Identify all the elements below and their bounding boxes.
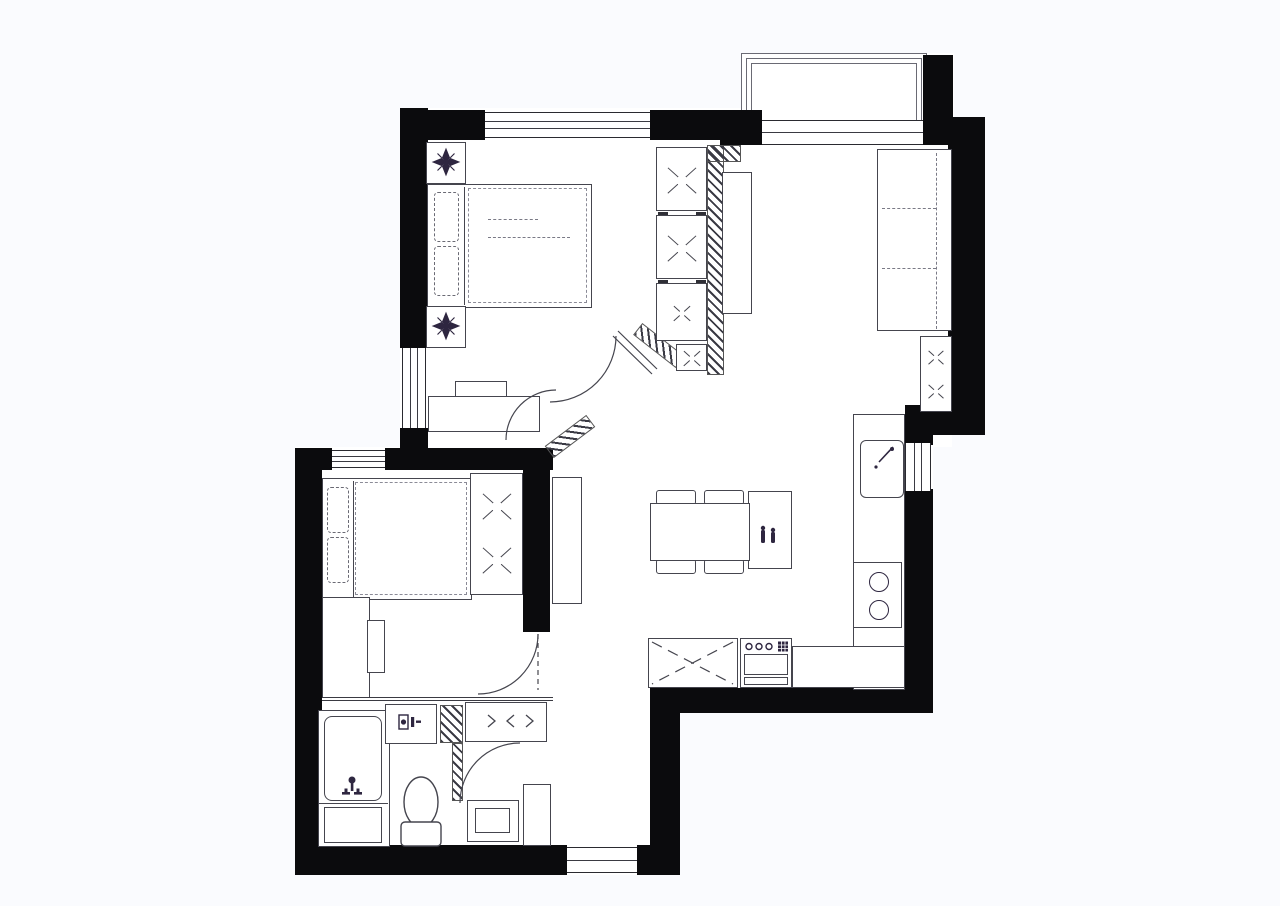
window-bedroom2-top xyxy=(332,450,385,468)
wall-b1-left-lower xyxy=(400,428,428,453)
pillow xyxy=(434,246,459,296)
refrigerator-cabinet xyxy=(648,638,738,688)
plant-icon xyxy=(429,309,463,343)
shelf-tick xyxy=(696,212,706,215)
entry-door-threshold xyxy=(567,847,637,873)
double-bed-bedroom1 xyxy=(427,184,592,308)
bathtub-foot xyxy=(324,807,382,843)
bathtub-divider xyxy=(319,803,388,804)
plant-icon xyxy=(429,145,463,179)
burner-icon xyxy=(869,572,889,592)
wall-right-upper xyxy=(948,117,985,408)
side-cabinet xyxy=(920,336,952,412)
shoe-cabinet xyxy=(465,702,547,742)
dining-table xyxy=(650,503,750,561)
kitchen-sink xyxy=(860,440,904,498)
toilet-icon xyxy=(396,774,448,848)
washing-machine xyxy=(385,704,437,744)
wall-living-top xyxy=(720,110,762,145)
x-mark-icon xyxy=(926,345,946,369)
oven-drawer xyxy=(744,677,788,685)
kitchen-counter-bottom xyxy=(792,646,905,688)
sofa-cushion-line xyxy=(882,268,936,269)
desk-bedroom2 xyxy=(322,597,370,700)
x-mark-icon xyxy=(478,538,516,582)
x-mark-icon xyxy=(663,156,701,204)
wall-b2-top-a xyxy=(295,448,332,470)
x-mark-icon xyxy=(478,484,516,528)
dining-chair xyxy=(656,559,696,574)
oven xyxy=(740,638,792,688)
washing-machine-icon xyxy=(398,714,422,732)
wardrobe-unit-1 xyxy=(656,147,707,211)
bottles-icon xyxy=(757,524,783,546)
window-bedroom1-top xyxy=(485,112,650,138)
wall-bottom xyxy=(295,845,567,875)
hall-console xyxy=(552,477,582,604)
bathroom-partition xyxy=(322,697,553,701)
bar-cabinet xyxy=(748,491,792,569)
wall-kitchen-bottom xyxy=(650,688,933,713)
blanket-fold xyxy=(488,219,538,220)
dresser-top-box xyxy=(455,381,507,397)
balcony-door-threshold xyxy=(762,120,923,145)
wardrobe-unit-small xyxy=(676,344,707,371)
sofa-cushion-line xyxy=(882,208,936,209)
sofa-back-line xyxy=(936,153,937,329)
wardrobe-unit-3 xyxy=(656,283,707,341)
hatch-wall-wardrobe-top xyxy=(707,145,741,162)
pillow xyxy=(434,192,459,242)
burner-icon xyxy=(869,600,889,620)
hall-tall-cabinet xyxy=(523,784,551,846)
sofa xyxy=(877,149,952,331)
pillow xyxy=(327,537,349,583)
shelf-tick xyxy=(658,212,668,215)
window-bedroom1-left xyxy=(402,348,426,428)
bathtub xyxy=(318,710,390,847)
sink-faucet-icon xyxy=(867,445,897,473)
wall-mid-vertical xyxy=(650,712,680,848)
wall-b2-right xyxy=(523,450,550,632)
shelf-tick xyxy=(658,280,668,283)
dining-chair xyxy=(704,559,744,574)
hatch-wall-bath-side xyxy=(452,743,463,801)
mattress xyxy=(355,482,467,595)
wardrobe-unit-2 xyxy=(656,215,707,279)
mattress xyxy=(468,188,587,303)
pillow xyxy=(327,487,349,533)
wall-right-kitchen xyxy=(905,489,933,690)
nightstand xyxy=(426,142,466,184)
bed-divider xyxy=(353,481,354,597)
wall-bottom-right xyxy=(637,845,680,875)
tv-cabinet xyxy=(722,172,752,314)
hall-cabinet-inner xyxy=(475,808,510,833)
bed-divider xyxy=(464,187,465,305)
nightstand xyxy=(426,306,466,348)
oven-door xyxy=(744,654,788,675)
window-kitchen-right xyxy=(905,443,931,491)
x-mark-icon xyxy=(663,224,701,272)
shelf-tick xyxy=(696,280,706,283)
x-mark-icon xyxy=(926,379,946,403)
floor-plan xyxy=(0,0,1280,906)
hatch-wall-bath-top xyxy=(440,705,463,743)
dresser-bedroom1 xyxy=(428,396,540,432)
desk-chair xyxy=(367,620,385,673)
x-mark-icon xyxy=(681,348,703,368)
wall-b1-left xyxy=(400,108,428,348)
chevron-icon xyxy=(466,703,546,741)
wall-b1-top-right xyxy=(650,110,722,140)
blanket-fold xyxy=(488,237,570,238)
wardrobe-bedroom2 xyxy=(470,473,523,595)
bath-faucet-icon xyxy=(339,775,365,799)
double-bed-bedroom2 xyxy=(322,478,472,600)
oven-knobs-icon xyxy=(742,640,790,653)
x-mark-icon xyxy=(671,302,693,324)
hall-cabinet-box xyxy=(467,800,519,842)
cooktop xyxy=(853,562,902,628)
